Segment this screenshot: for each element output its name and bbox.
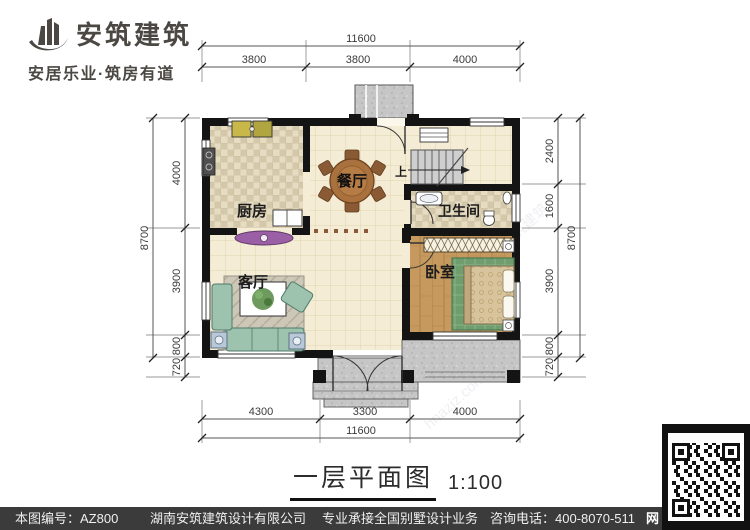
porch-column	[401, 370, 414, 383]
living-label: 客厅	[237, 273, 268, 291]
staircase	[408, 148, 470, 186]
svg-text:4300: 4300	[249, 406, 273, 418]
company-name: 湖南安筑建筑设计有限公司	[150, 507, 306, 530]
svg-text:8700: 8700	[566, 226, 578, 250]
web-badge: 网	[646, 507, 659, 530]
footer-bar: 本图编号：AZ800 湖南安筑建筑设计有限公司 专业承接全国别墅设计业务 咨询电…	[0, 507, 750, 530]
bathroom-label: 卫生间	[438, 203, 480, 219]
bedroom-label: 卧室	[425, 263, 455, 281]
window	[470, 118, 504, 126]
drawing-number: 本图编号：AZ800	[15, 507, 118, 530]
svg-text:720: 720	[171, 358, 183, 376]
svg-text:8700: 8700	[139, 226, 151, 250]
svg-text:4000: 4000	[453, 406, 477, 418]
svg-text:11600: 11600	[346, 425, 376, 437]
phone-number: 咨询电话：400-8070-511	[490, 507, 635, 530]
svg-text:2400: 2400	[544, 139, 556, 163]
nightstand	[503, 320, 514, 331]
svg-text:800: 800	[171, 337, 183, 355]
pillow	[503, 270, 514, 292]
service-slogan: 专业承接全国别墅设计业务	[322, 507, 478, 530]
qr-code-block	[662, 424, 750, 530]
sofa-side	[212, 284, 232, 330]
kitchen-sink	[232, 121, 251, 137]
top-porch	[355, 85, 413, 118]
nightstand	[503, 241, 514, 252]
window	[512, 194, 520, 222]
qr-code-icon	[668, 433, 744, 521]
wardrobe	[424, 238, 514, 252]
floor-plan-drawing: hnazjz.com hnazjz.com 安筑建筑 hnazjz.com	[0, 0, 750, 530]
drawing-title: 一层平面图 1:100	[290, 458, 503, 501]
svg-text:3800: 3800	[242, 54, 266, 66]
page: { "logo": { "name": "安筑建筑", "tagline": "…	[0, 0, 750, 530]
svg-text:800: 800	[544, 337, 556, 355]
svg-text:720: 720	[544, 358, 556, 376]
window	[202, 282, 210, 320]
svg-text:4000: 4000	[453, 54, 477, 66]
svg-text:4000: 4000	[171, 161, 183, 185]
stairs-up-label: 上	[395, 164, 407, 179]
fridge	[273, 210, 302, 226]
shower-fixture	[503, 192, 511, 204]
svg-text:3900: 3900	[171, 269, 183, 293]
drawing-title-text: 一层平面图	[290, 458, 436, 501]
kitchen-label: 厨房	[237, 202, 267, 220]
pillow	[503, 296, 514, 318]
entry-porch	[313, 340, 520, 407]
svg-text:11600: 11600	[346, 33, 376, 45]
svg-text:1600: 1600	[544, 194, 556, 218]
shoe-cabinet	[420, 128, 448, 142]
drawing-scale: 1:100	[448, 472, 503, 501]
dining-label: 餐厅	[337, 172, 367, 190]
svg-text:3900: 3900	[544, 269, 556, 293]
svg-text:3300: 3300	[353, 406, 377, 418]
svg-text:3800: 3800	[346, 54, 370, 66]
window	[433, 332, 497, 340]
porch-column	[313, 370, 326, 383]
porch-column	[507, 370, 520, 383]
